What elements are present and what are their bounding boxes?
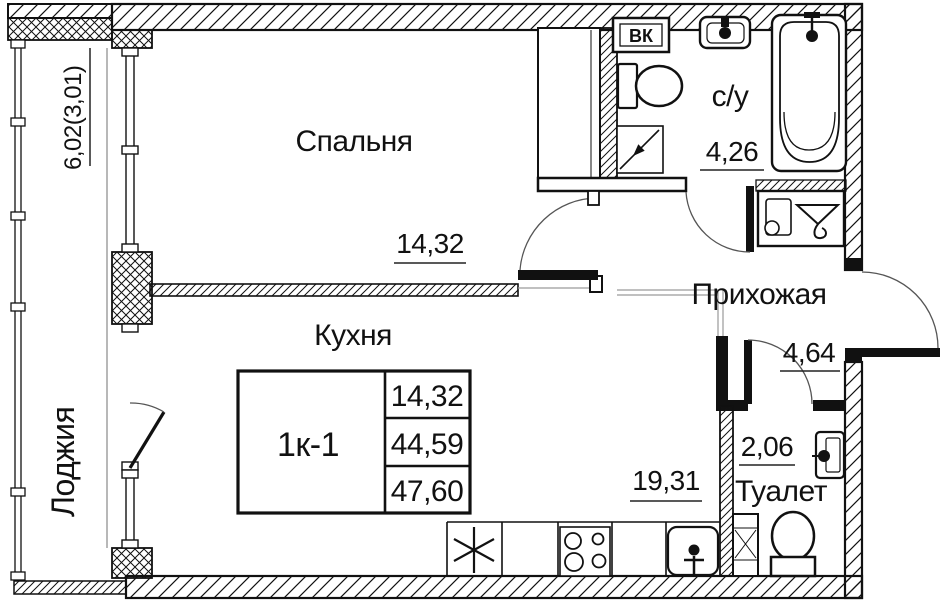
table-value-1: 14,32 — [391, 380, 464, 413]
vent-shaft-label: ВК — [629, 26, 654, 46]
glazing-mullions — [11, 40, 25, 580]
room-label-loggia: Лоджия — [45, 407, 81, 517]
bathroom-door-arc — [686, 192, 750, 252]
apartment-info-table: 1к-1 14,32 44,59 47,60 — [238, 371, 470, 513]
vent-shaft-box: ВК — [613, 18, 669, 52]
kitchen-sink-icon — [668, 527, 718, 575]
right-wall-lower — [845, 362, 862, 598]
area-label-hallway: 4,64 — [783, 337, 836, 368]
entrance-door — [862, 272, 940, 357]
area-label-bedroom: 14,32 — [396, 228, 464, 259]
area-label-loggia: 6,02(3,01) — [60, 66, 87, 170]
room-label-toilet: Туалет — [735, 475, 828, 508]
bedroom-kitchen-wall — [150, 284, 518, 296]
room-label-hallway: Прихожая — [691, 278, 826, 311]
kitchen-fixtures — [447, 522, 720, 576]
washing-machine-icon — [765, 199, 791, 235]
kitchen-window — [122, 470, 138, 548]
table-value-2: 44,59 — [391, 428, 464, 461]
entrance-jamb-top — [845, 258, 862, 270]
table-value-3: 47,60 — [391, 475, 464, 508]
balcony-door-leaf — [130, 412, 164, 468]
entrance-jamb-bottom — [845, 348, 862, 362]
bathroom-fixtures: ВК — [613, 12, 846, 246]
room-label-kitchen: Кухня — [314, 319, 392, 352]
toilet-bowl-icon — [771, 512, 815, 576]
toilet-sink-icon — [812, 432, 844, 478]
bathroom-south-wall — [538, 178, 686, 191]
bedroom-door-arc — [520, 198, 596, 270]
vanity-unit — [756, 180, 846, 246]
balcony-door — [122, 324, 164, 470]
area-label-toilet: 2,06 — [741, 431, 794, 462]
toilet-duct — [733, 514, 758, 576]
bathtub-icon — [772, 12, 846, 171]
bedroom-window — [122, 48, 138, 252]
room-label-bathroom: с/у — [712, 80, 749, 113]
loggia-top-band — [8, 18, 112, 40]
bathroom-door-leaf — [746, 186, 754, 252]
toilet-icon — [618, 64, 682, 108]
area-label-bathroom: 4,26 — [706, 136, 759, 167]
table-unit-label: 1к-1 — [277, 426, 339, 464]
loggia-glazing — [11, 40, 25, 581]
room-label-bedroom: Спальня — [295, 125, 412, 158]
window-pier-bottom — [112, 548, 152, 578]
bedroom-door-leaf — [518, 270, 598, 280]
window-pier-middle — [112, 252, 152, 324]
loggia-bottom-band — [14, 581, 126, 594]
fridge-icon — [454, 527, 494, 573]
bottom-wall — [126, 576, 862, 598]
shaft-symbol — [617, 126, 663, 173]
bathroom-sink-icon — [700, 17, 750, 48]
floor-plan: ВК — [0, 0, 947, 600]
area-label-kitchen: 19,31 — [632, 465, 700, 496]
entrance-door-leaf — [862, 348, 940, 357]
floor-plan-drawing: ВК — [0, 0, 947, 600]
loggia-top-wall — [8, 4, 112, 18]
toilet-door-leaf — [744, 340, 752, 404]
right-wall-upper — [845, 4, 862, 270]
window-pier-top — [112, 30, 152, 48]
loggia-window-wall — [107, 30, 164, 578]
stove-icon — [560, 527, 610, 576]
balcony-door-arc — [130, 403, 164, 412]
toilet-west-wall — [720, 406, 733, 576]
kitchen-hallway-wall — [716, 336, 728, 406]
toilet-north-wall-right — [813, 400, 845, 411]
entrance-door-arc — [862, 272, 938, 348]
wall-return — [588, 191, 599, 205]
